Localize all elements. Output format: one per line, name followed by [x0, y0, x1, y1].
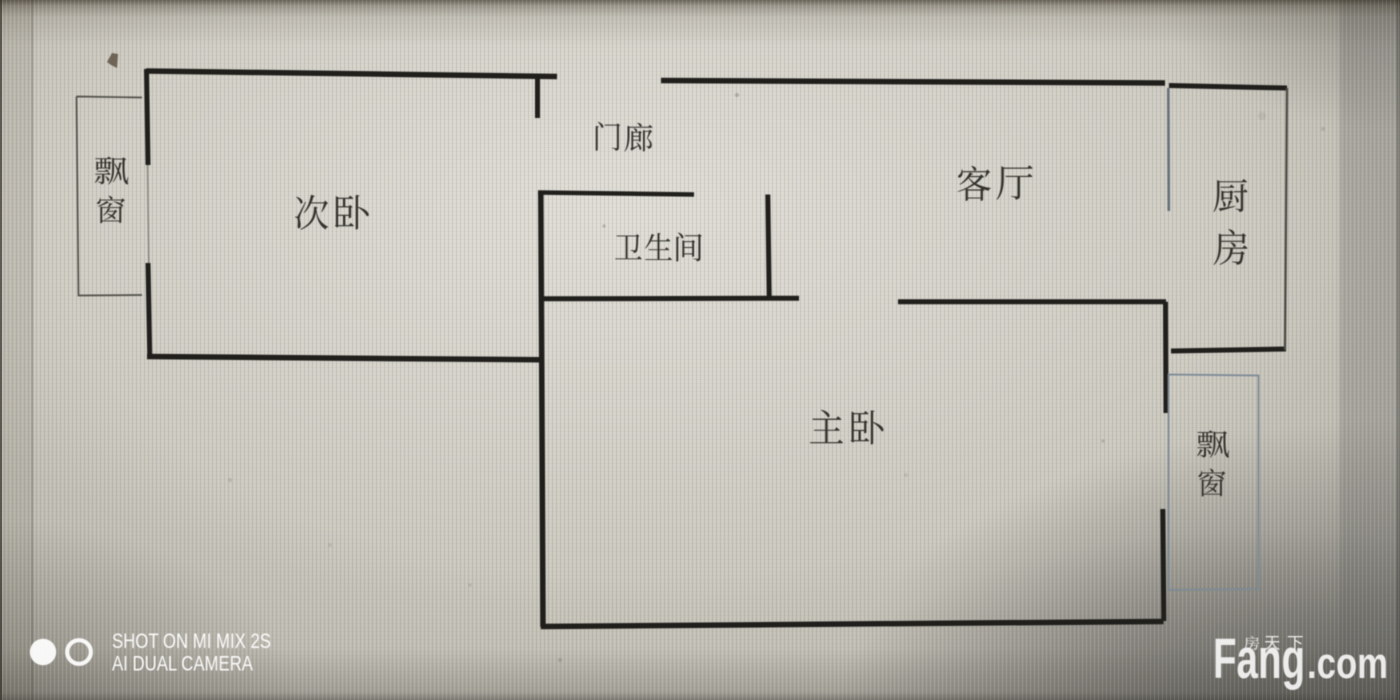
svg-text:.com: .com	[1307, 639, 1388, 688]
svg-text:SHOT ON MI MIX 2S: SHOT ON MI MIX 2S	[112, 629, 271, 653]
svg-text:AI DUAL CAMERA: AI DUAL CAMERA	[112, 652, 254, 676]
